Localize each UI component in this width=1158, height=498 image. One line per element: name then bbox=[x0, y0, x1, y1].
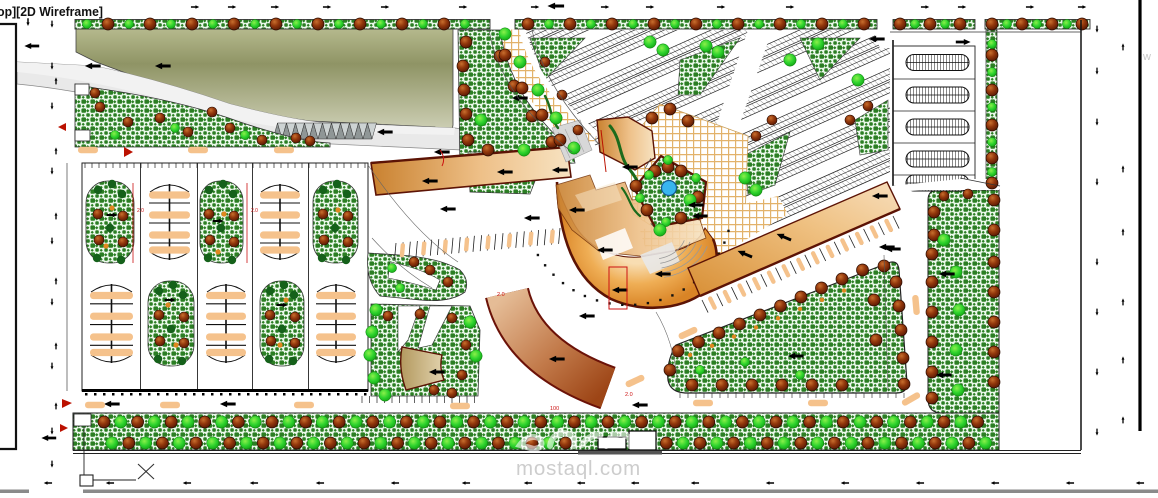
svg-text:2.0: 2.0 bbox=[251, 208, 258, 214]
svg-text:2.0: 2.0 bbox=[625, 392, 633, 398]
svg-text:w: w bbox=[1142, 51, 1151, 63]
svg-text:mostaql.com: mostaql.com bbox=[516, 457, 641, 480]
svg-text:op][2D Wireframe]: op][2D Wireframe] bbox=[0, 5, 103, 19]
svg-text:2.0: 2.0 bbox=[497, 292, 505, 298]
svg-text:2.0: 2.0 bbox=[137, 208, 144, 214]
svg-text:100: 100 bbox=[550, 406, 559, 412]
